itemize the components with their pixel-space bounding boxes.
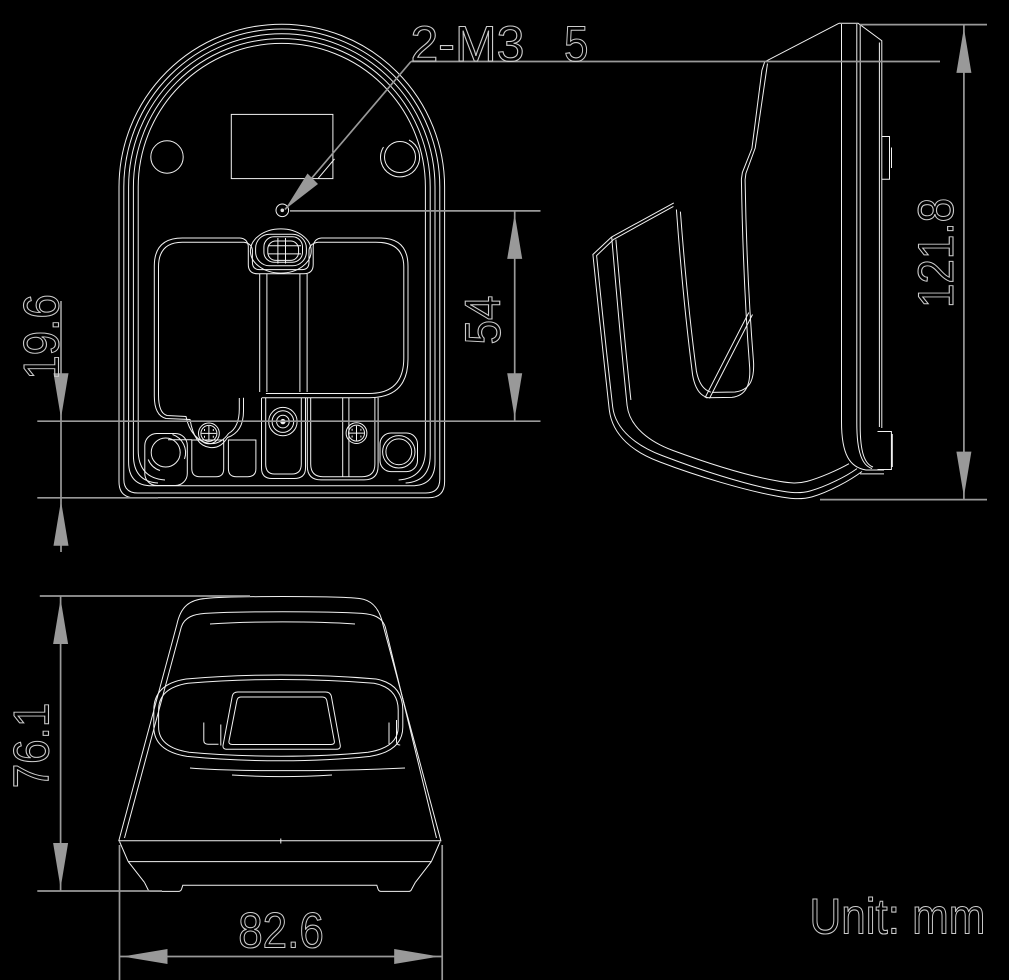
svg-text:76.1: 76.1 [3,703,59,789]
svg-text:54: 54 [454,296,510,345]
svg-text:2-M3: 2-M3 [411,16,525,72]
svg-text:121.8: 121.8 [907,198,963,308]
svg-text:5: 5 [564,15,588,71]
svg-text:82.6: 82.6 [238,902,324,958]
svg-text:Unit: mm: Unit: mm [810,888,986,944]
svg-text:19.6: 19.6 [13,294,69,380]
